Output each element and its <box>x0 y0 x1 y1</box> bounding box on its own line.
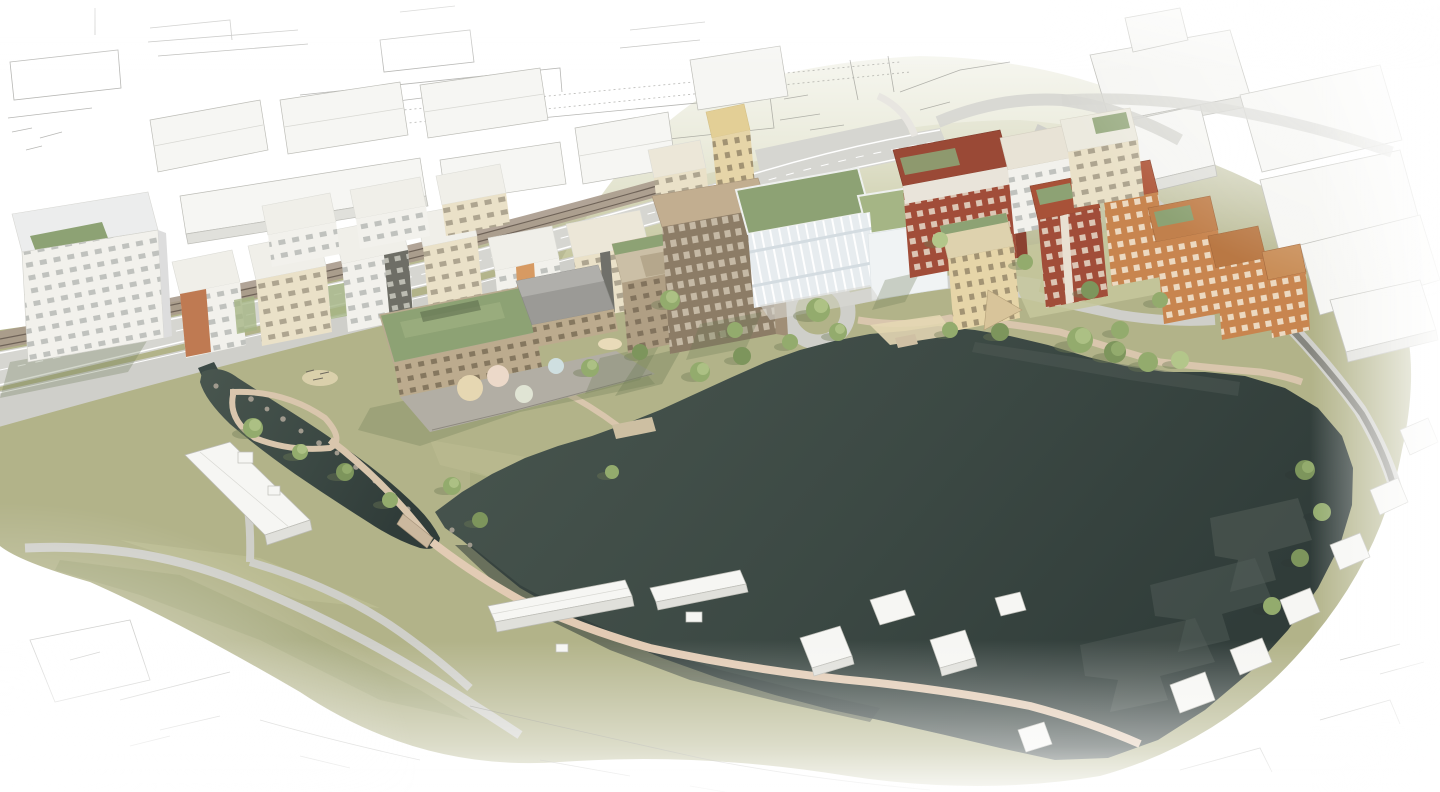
aerial-rendering <box>0 0 1440 792</box>
rendering-canvas <box>0 0 1440 792</box>
fade-top <box>0 0 1440 70</box>
fade-corner-bottom-left <box>0 500 420 792</box>
playground-sand <box>302 370 338 386</box>
